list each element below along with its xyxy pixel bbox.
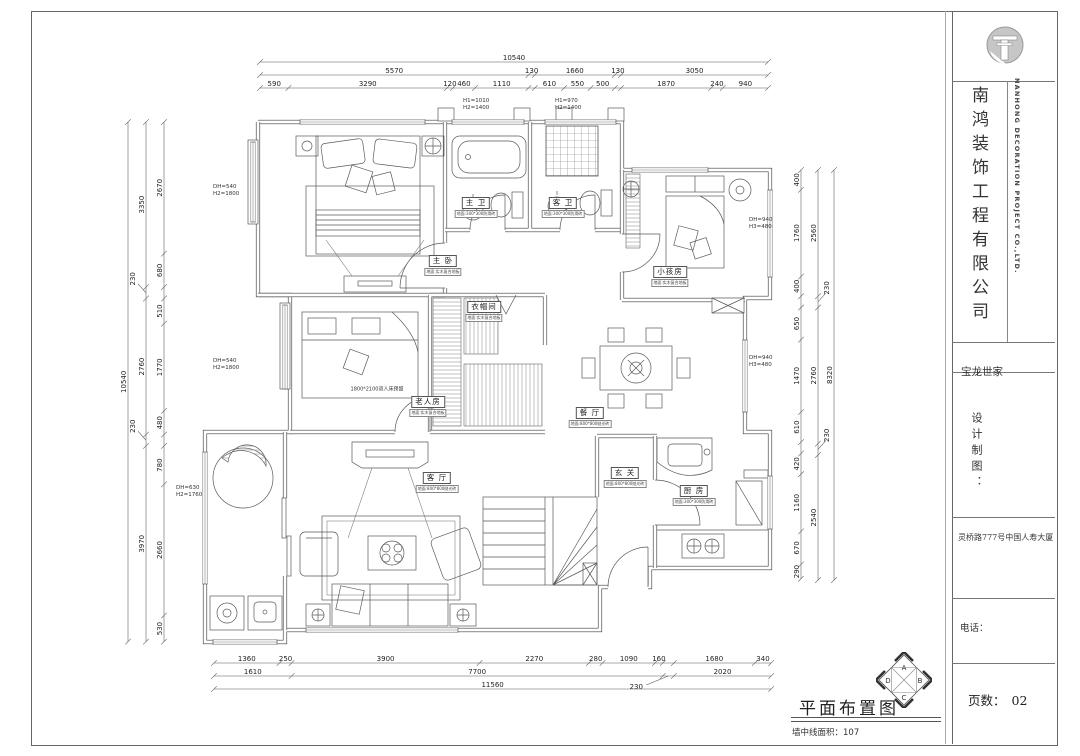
svg-text:530: 530 (156, 622, 164, 635)
svg-text:230: 230 (129, 420, 137, 433)
svg-text:650: 650 (793, 317, 801, 330)
window-annotation-1: H1=970H2=1400 (555, 98, 581, 111)
svg-text:610: 610 (793, 420, 801, 433)
area-note: 墙中线面积：107 (792, 726, 859, 738)
title-block-divider (952, 663, 1055, 664)
svg-text:2560: 2560 (810, 224, 818, 242)
room-note-0: 地面:实木复合地板 (424, 268, 461, 276)
svg-text:3970: 3970 (138, 535, 146, 553)
svg-text:780: 780 (156, 458, 164, 471)
dining-table (582, 328, 690, 408)
svg-text:1680: 1680 (705, 655, 723, 663)
window-annotation-5: DH=940H3=480 (749, 217, 772, 230)
svg-text:3050: 3050 (686, 67, 704, 75)
hatch-areas (433, 126, 640, 426)
svg-text:2760: 2760 (138, 358, 146, 376)
svg-text:1110: 1110 (493, 80, 511, 88)
coffee-table (368, 536, 416, 570)
title-block-divider (952, 598, 1055, 599)
room-label-1: 主 卫 (462, 197, 490, 209)
side-table (729, 179, 751, 201)
master-bed (306, 136, 434, 256)
room-note-3: 地面:实木复合地板 (651, 279, 688, 287)
shower-grid (546, 126, 598, 176)
svg-text:1770: 1770 (156, 358, 164, 376)
svg-text:670: 670 (793, 541, 801, 554)
svg-text:230: 230 (129, 272, 137, 285)
svg-text:290: 290 (793, 565, 801, 578)
stairs (483, 497, 597, 585)
elevation-compass: A B C D (876, 652, 932, 708)
svg-text:420: 420 (793, 457, 801, 470)
room-note-9: 地面:300*300防滑砖 (673, 498, 716, 506)
tv-console (344, 276, 406, 292)
project-name: 宝龙世家 (961, 364, 1003, 379)
room-label-3: 小孩房 (653, 266, 687, 278)
svg-text:230: 230 (630, 683, 643, 691)
svg-text:7700: 7700 (468, 668, 486, 676)
kids-bed (666, 176, 724, 268)
bathtub (452, 136, 526, 178)
room-label-7: 客 厅 (423, 472, 451, 484)
compass-c: C (902, 694, 907, 702)
svg-text:610: 610 (543, 80, 556, 88)
room-note-7: 地面:800*800抛光砖 (416, 485, 459, 493)
svg-text:1870: 1870 (657, 80, 675, 88)
svg-text:250: 250 (279, 655, 292, 663)
washer (210, 596, 244, 630)
svg-text:2020: 2020 (714, 668, 732, 676)
svg-text:1610: 1610 (244, 668, 262, 676)
sofa (332, 584, 448, 626)
page-number: 02 (1012, 693, 1028, 708)
compass-d: D (885, 677, 890, 685)
svg-text:3350: 3350 (138, 196, 146, 214)
room-label-4: 老人房 (411, 396, 445, 408)
svg-text:8320: 8320 (826, 366, 834, 384)
rug (322, 516, 460, 600)
company-address: 灵桥路777号中国人寿大厦 (958, 532, 1054, 543)
compass-a: A (902, 664, 907, 672)
room-label-8: 玄 关 (611, 467, 639, 479)
page-number-row: 页数：02 (968, 690, 1027, 709)
room-label-5: 衣帽间 (467, 301, 501, 313)
floor-plan: 1054055701301660130305059032901204601110… (0, 0, 1080, 756)
company-name-cn: 南鸿装饰工程有限公司 (966, 86, 991, 326)
svg-text:1760: 1760 (793, 224, 801, 242)
design-label: 设计制图： (968, 412, 984, 492)
balcony-chair (213, 445, 273, 508)
svg-text:11560: 11560 (481, 681, 503, 689)
room-label-0: 主 卧 (429, 255, 457, 267)
window-annotation-4: DH=630H2=1760 (176, 485, 202, 498)
toilet (580, 190, 612, 216)
room-note-5: 地面:实木复合地板 (465, 314, 502, 322)
tv-wall (352, 442, 428, 468)
svg-text:1660: 1660 (566, 67, 584, 75)
svg-text:240: 240 (710, 80, 723, 88)
svg-text:3900: 3900 (377, 655, 395, 663)
armchair (430, 526, 483, 581)
room-note-4: 地面:实木复合地板 (409, 409, 446, 417)
svg-text:2760: 2760 (810, 367, 818, 385)
phone-label: 电话： (960, 620, 989, 634)
drawing-sheet: 1054055701301660130305059032901204601110… (0, 0, 1080, 756)
compass-b: B (918, 677, 923, 685)
svg-text:680: 680 (156, 264, 164, 277)
laundry-sink (248, 596, 282, 630)
company-logo (984, 24, 1026, 66)
svg-text:5570: 5570 (385, 67, 403, 75)
svg-text:2670: 2670 (156, 179, 164, 197)
plan-note-0: 1800*2100双人床预留 (351, 386, 404, 393)
room-label-6: 餐 厅 (576, 407, 604, 419)
svg-text:1470: 1470 (793, 367, 801, 385)
room-label-2: 客 卫 (549, 197, 577, 209)
window-annotation-0: H1=1010H2=1400 (463, 98, 489, 111)
room-note-2: 地面:300*300防滑砖 (542, 210, 585, 218)
nightstand (296, 136, 318, 156)
svg-text:2660: 2660 (156, 541, 164, 559)
drawing-title-rule (791, 717, 941, 722)
svg-text:460: 460 (457, 80, 470, 88)
svg-text:3290: 3290 (359, 80, 377, 88)
svg-text:120: 120 (443, 80, 456, 88)
area-value: 107 (843, 728, 859, 738)
svg-text:1090: 1090 (620, 655, 638, 663)
svg-text:340: 340 (756, 655, 769, 663)
title-block-divider (952, 81, 1055, 82)
room-note-1: 地面:300*300防滑砖 (455, 210, 498, 218)
svg-text:1160: 1160 (793, 494, 801, 512)
window-annotation-6: DH=940H3=480 (749, 355, 772, 368)
company-name-en: NANHONG DECORATION PROJECT CO.,LTD. (1013, 78, 1021, 274)
window-annotation-2: DH=540H2=1800 (213, 184, 239, 197)
armchair (300, 532, 338, 576)
svg-text:590: 590 (268, 80, 281, 88)
svg-text:2540: 2540 (810, 509, 818, 527)
svg-text:1360: 1360 (238, 655, 256, 663)
room-label-9: 厨 房 (680, 485, 708, 497)
svg-text:10540: 10540 (120, 371, 128, 393)
title-block-divider (952, 517, 1055, 518)
svg-text:510: 510 (156, 304, 164, 317)
svg-text:500: 500 (596, 80, 609, 88)
svg-text:940: 940 (739, 80, 752, 88)
area-label: 墙中线面积： (792, 728, 843, 738)
svg-text:280: 280 (589, 655, 602, 663)
svg-text:10540: 10540 (503, 54, 525, 62)
company-name-divider (1007, 81, 1008, 342)
svg-text:550: 550 (571, 80, 584, 88)
room-note-6: 地面:800*800抛光砖 (569, 420, 612, 428)
svg-text:230: 230 (823, 281, 831, 294)
room-note-8: 地面:800*800抛光砖 (604, 480, 647, 488)
svg-text:400: 400 (793, 173, 801, 186)
svg-text:400: 400 (793, 280, 801, 293)
closet-rack-bottom (464, 364, 542, 426)
svg-text:2270: 2270 (525, 655, 543, 663)
title-block-divider (952, 342, 1055, 343)
page-label: 页数： (968, 693, 1006, 708)
window-annotation-3: DH=540H2=1800 (213, 358, 239, 371)
svg-text:230: 230 (823, 429, 831, 442)
svg-text:480: 480 (156, 416, 164, 429)
